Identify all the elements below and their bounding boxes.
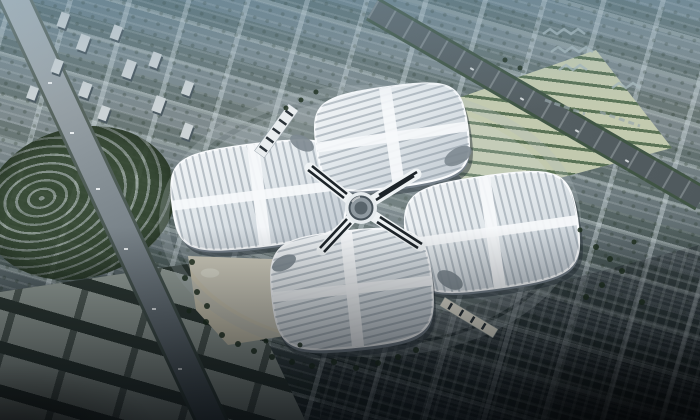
atmospheric-haze-overlay [0, 0, 700, 420]
aerial-rendering-canvas [0, 0, 700, 420]
